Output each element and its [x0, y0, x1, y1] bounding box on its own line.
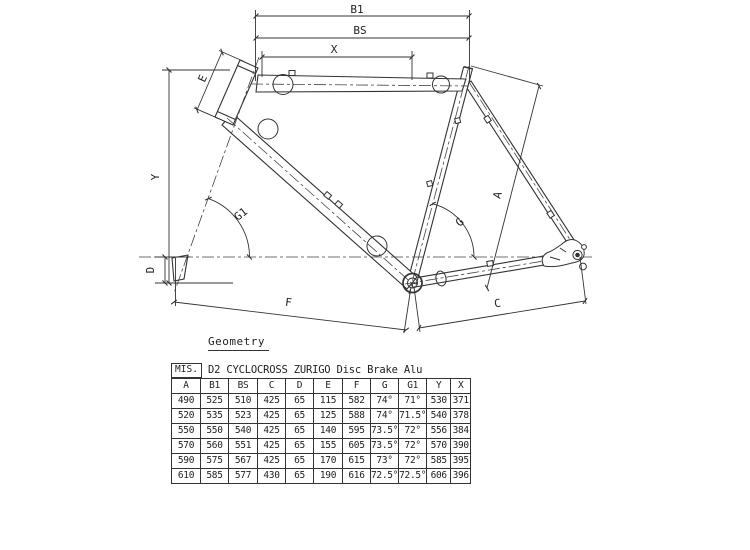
table-cell: 425 — [258, 409, 286, 424]
down-tube-centerline — [227, 118, 416, 287]
table-cell: 72.5° — [399, 469, 427, 484]
dim-label-e: E — [196, 73, 211, 84]
table-header-row: AB1BSCDEFGG1YX — [172, 379, 471, 394]
table-cell: 523 — [229, 409, 258, 424]
table-cell: 540 — [229, 424, 258, 439]
rear-axle-center — [576, 253, 580, 257]
table-cell: 577 — [229, 469, 258, 484]
ext-f-right-from-bb — [404, 287, 411, 333]
table-cell: 560 — [201, 439, 229, 454]
table-cell: 605 — [343, 439, 371, 454]
ext-a-top — [471, 66, 543, 86]
table-cell: 616 — [343, 469, 371, 484]
steering-axis-centerline — [174, 57, 259, 293]
table-cell: 551 — [229, 439, 258, 454]
table-cell: 74° — [371, 394, 399, 409]
seat-stay-centerline — [469, 82, 576, 249]
frame-tubes — [172, 60, 578, 289]
table-cell: 190 — [314, 469, 343, 484]
top-tube-boss-front — [289, 70, 295, 75]
table-cell: 65 — [286, 409, 314, 424]
column-header: B1 — [201, 379, 229, 394]
table-row: 6105855774306519061672.5°72.5°606396 — [172, 469, 471, 484]
table-cell: 71° — [399, 394, 427, 409]
column-header: BS — [229, 379, 258, 394]
table-cell: 395 — [451, 454, 471, 469]
table-cell: 590 — [172, 454, 201, 469]
table-cell: 73.5° — [371, 439, 399, 454]
table-cell: 65 — [286, 454, 314, 469]
table-cell: 520 — [172, 409, 201, 424]
ext-e-top — [219, 51, 244, 62]
dim-label-g1: G1 — [232, 205, 250, 223]
geometry-table: MIS. D2 CYCLOCROSS ZURIGO Disc Brake Alu… — [171, 363, 471, 484]
table-cell: 595 — [343, 424, 371, 439]
table-cell: 74° — [371, 409, 399, 424]
table-cell: 585 — [427, 454, 451, 469]
dim-label-g: G — [453, 215, 466, 229]
column-header: A — [172, 379, 201, 394]
dim-c-line — [419, 301, 585, 328]
table-title: D2 CYCLOCROSS ZURIGO Disc Brake Alu — [208, 363, 422, 378]
dimension-labels: B1 BS X E Y G1 D F A G C — [144, 3, 505, 310]
table-cell: 72° — [399, 424, 427, 439]
top-tube-boss-rear — [427, 73, 433, 78]
dim-label-a: A — [490, 190, 504, 200]
dim-label-x: X — [331, 43, 338, 56]
table-cell: 567 — [229, 454, 258, 469]
table-title-row: MIS. D2 CYCLOCROSS ZURIGO Disc Brake Alu — [171, 363, 471, 378]
table-cell: 540 — [427, 409, 451, 424]
dim-label-d: D — [144, 267, 157, 274]
table-cell: 490 — [172, 394, 201, 409]
table-cell: 65 — [286, 424, 314, 439]
table-row: 5905755674256517061573°72°585395 — [172, 454, 471, 469]
table-row: 5205355234256512558874°71.5°540378 — [172, 409, 471, 424]
table-cell: 140 — [314, 424, 343, 439]
table-cell: 65 — [286, 394, 314, 409]
table-cell: 510 — [229, 394, 258, 409]
table-cell: 588 — [343, 409, 371, 424]
table-body: 4905255104256511558274°71°53037152053552… — [172, 394, 471, 484]
table-cell: 72° — [399, 439, 427, 454]
column-header: C — [258, 379, 286, 394]
table-cell: 585 — [201, 469, 229, 484]
dim-label-b1: B1 — [350, 3, 363, 16]
table-cell: 425 — [258, 394, 286, 409]
seat-stay-tube — [465, 81, 578, 250]
table-cell: 73.5° — [371, 424, 399, 439]
table-cell: 170 — [314, 454, 343, 469]
table-cell: 71.5° — [399, 409, 427, 424]
table-cell: 72° — [399, 454, 427, 469]
table-cell: 65 — [286, 439, 314, 454]
table-cell: 72.5° — [371, 469, 399, 484]
table-cell: 390 — [451, 439, 471, 454]
caliper-bolt-upper — [582, 245, 587, 250]
table-cell: 556 — [427, 424, 451, 439]
table-cell: 570 — [427, 439, 451, 454]
table-cell: 115 — [314, 394, 343, 409]
rear-dropout-disc-caliper — [542, 240, 586, 270]
table-cell: 73° — [371, 454, 399, 469]
table-cell: 535 — [201, 409, 229, 424]
table-row: 4905255104256511558274°71°530371 — [172, 394, 471, 409]
dim-label-f: F — [284, 296, 292, 310]
table-cell: 396 — [451, 469, 471, 484]
table-cell: 550 — [201, 424, 229, 439]
bike-geometry-sheet: B1 BS X E Y G1 D F A G C Geometry MIS. D… — [0, 0, 750, 550]
table-cell: 425 — [258, 424, 286, 439]
table-row: 5705605514256515560573.5°72°570390 — [172, 439, 471, 454]
ext-c-left-from-bb — [414, 287, 420, 332]
column-header: G — [371, 379, 399, 394]
dim-label-c: C — [493, 297, 502, 311]
dim-label-y: Y — [149, 173, 162, 180]
table-cell: 525 — [201, 394, 229, 409]
column-header: D — [286, 379, 314, 394]
geometry-table-grid: AB1BSCDEFGG1YX 4905255104256511558274°71… — [171, 378, 471, 484]
geometry-caption: Geometry — [208, 335, 269, 351]
dim-g-angle-arc — [433, 204, 474, 257]
table-cell: 384 — [451, 424, 471, 439]
table-cell: 430 — [258, 469, 286, 484]
table-cell: 570 — [172, 439, 201, 454]
table-header: AB1BSCDEFGG1YX — [172, 379, 471, 394]
down-tube-upper-ring — [258, 119, 278, 139]
table-cell: 606 — [427, 469, 451, 484]
column-header: G1 — [399, 379, 427, 394]
table-cell: 615 — [343, 454, 371, 469]
table-cell: 155 — [314, 439, 343, 454]
table-cell: 575 — [201, 454, 229, 469]
table-cell: 425 — [258, 439, 286, 454]
table-cell: 550 — [172, 424, 201, 439]
column-header: F — [343, 379, 371, 394]
table-cell: 425 — [258, 454, 286, 469]
table-row: 5505505404256514059573.5°72°556384 — [172, 424, 471, 439]
column-header: X — [451, 379, 471, 394]
dim-label-bs: BS — [353, 24, 366, 37]
table-cell: 530 — [427, 394, 451, 409]
column-header: Y — [427, 379, 451, 394]
table-cell: 610 — [172, 469, 201, 484]
column-header: E — [314, 379, 343, 394]
table-cell: 582 — [343, 394, 371, 409]
size-unit-label: MIS. — [171, 363, 202, 378]
table-cell: 371 — [451, 394, 471, 409]
table-cell: 378 — [451, 409, 471, 424]
seat-tube-boss-left — [427, 181, 433, 187]
seat-tube-boss-right — [455, 118, 461, 124]
table-cell: 65 — [286, 469, 314, 484]
table-cell: 125 — [314, 409, 343, 424]
